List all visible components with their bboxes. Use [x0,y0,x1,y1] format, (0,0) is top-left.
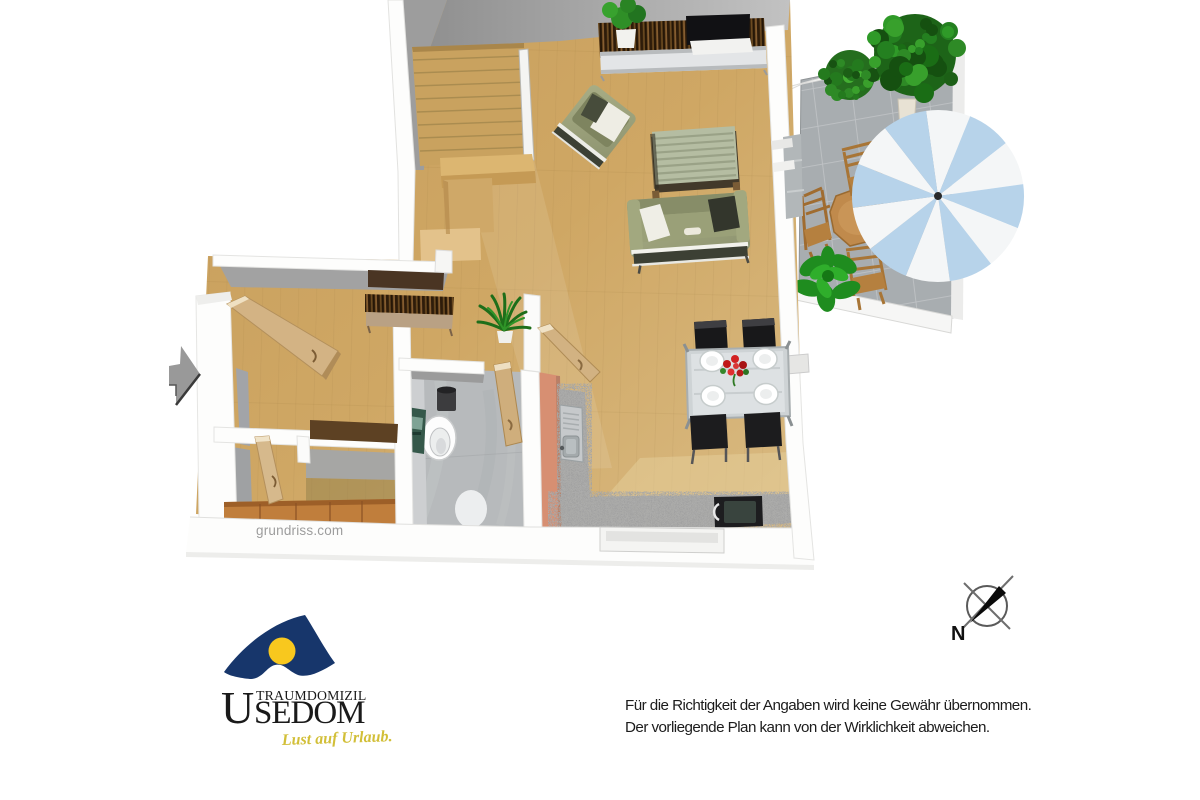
svg-text:Für die Richtigkeit der Angabe: Für die Richtigkeit der Angaben wird kei… [625,697,1031,714]
svg-text:SEDOM: SEDOM [254,695,365,731]
svg-text:U: U [221,682,254,733]
svg-text:Der vorliegende Plan kann von: Der vorliegende Plan kann von der Wirkli… [625,719,990,736]
svg-text:grundriss.com: grundriss.com [256,523,343,538]
svg-text:N: N [951,623,965,645]
